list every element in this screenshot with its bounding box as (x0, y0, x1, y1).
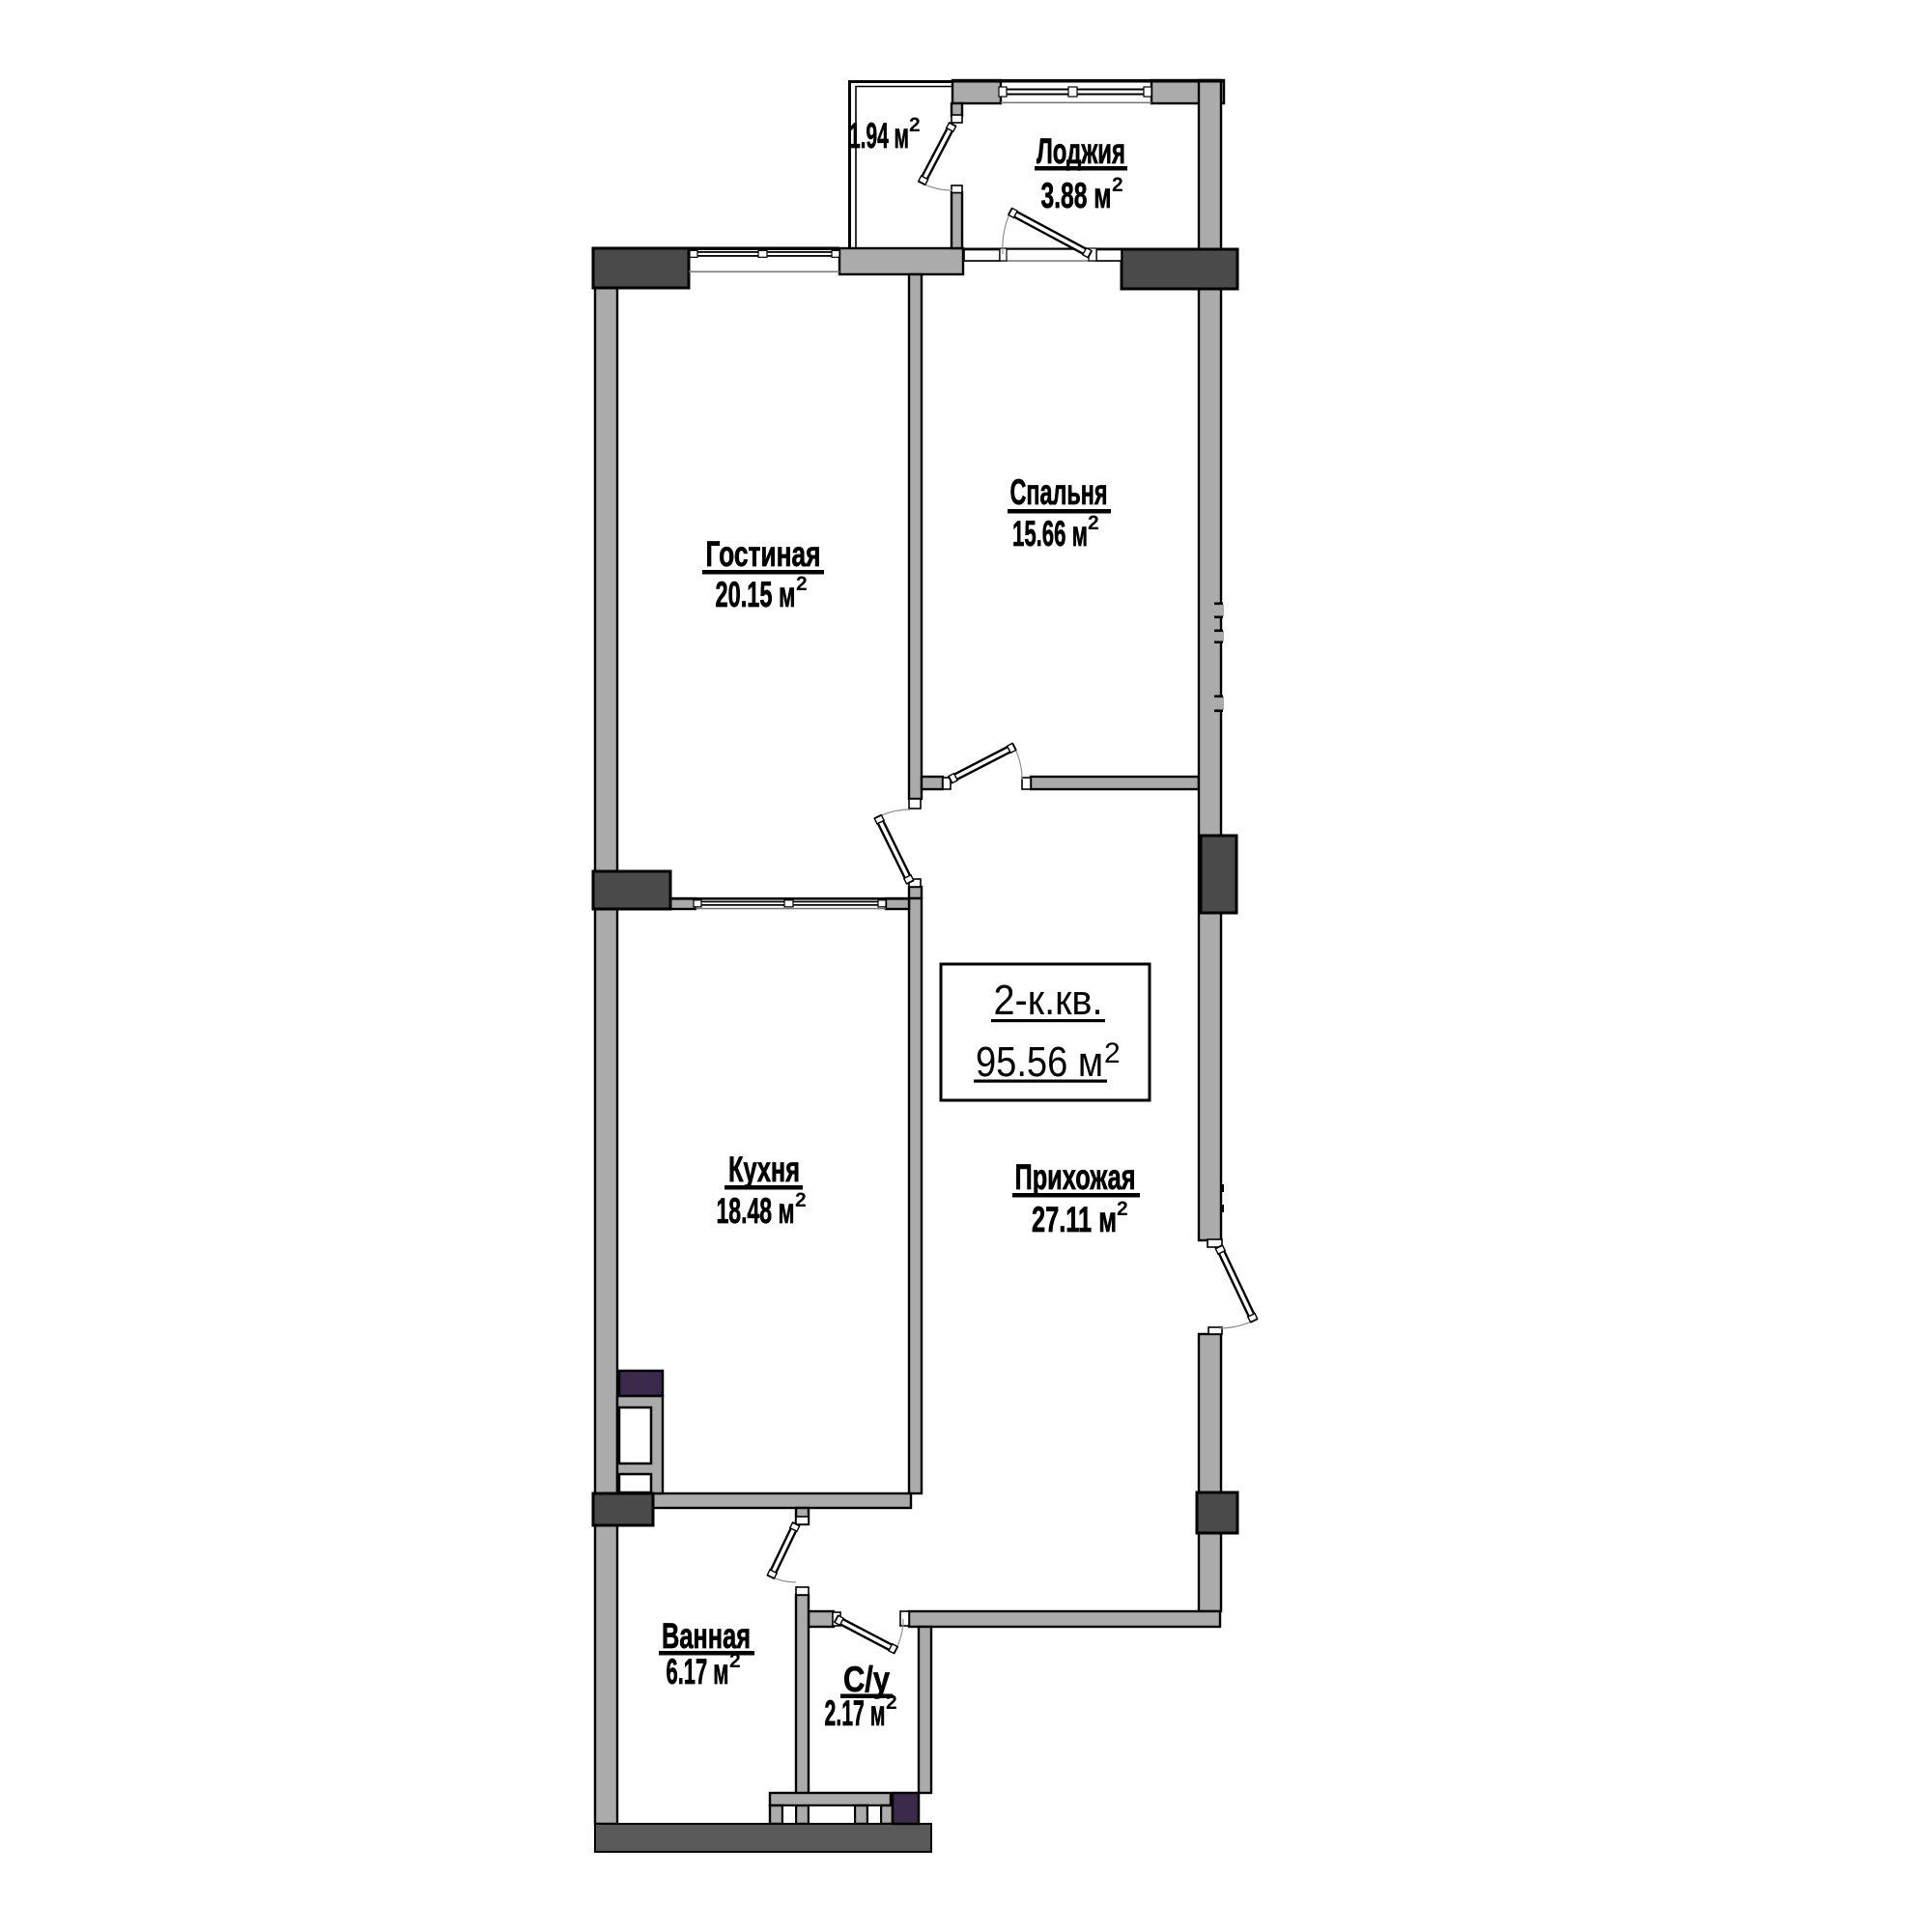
svg-text:Прихожая: Прихожая (1015, 1157, 1136, 1197)
svg-text:3.88 м: 3.88 м (1041, 176, 1112, 215)
svg-text:2: 2 (1104, 1037, 1121, 1069)
svg-text:20.15 м: 20.15 м (716, 575, 796, 614)
svg-text:2: 2 (1112, 174, 1123, 196)
svg-text:2-к.кв.: 2-к.кв. (994, 977, 1103, 1024)
svg-text:2: 2 (886, 1691, 897, 1714)
svg-text:Лоджия: Лоджия (1037, 131, 1125, 171)
svg-text:2: 2 (1088, 512, 1099, 534)
svg-text:18.48 м: 18.48 м (717, 1191, 795, 1231)
svg-text:Кухня: Кухня (728, 1150, 800, 1189)
svg-text:15.66 м: 15.66 м (1012, 514, 1088, 554)
svg-text:2.17 м: 2.17 м (825, 1693, 886, 1733)
svg-text:2: 2 (909, 114, 921, 136)
svg-text:2: 2 (795, 1189, 807, 1211)
svg-text:95.56 м: 95.56 м (976, 1038, 1103, 1086)
svg-text:Гостиная: Гостиная (706, 534, 821, 574)
svg-text:2: 2 (1117, 1198, 1128, 1220)
svg-text:2: 2 (729, 1650, 741, 1672)
svg-text:27.11 м: 27.11 м (1032, 1200, 1117, 1239)
svg-text:Спальня: Спальня (1010, 472, 1108, 512)
svg-text:2: 2 (796, 573, 808, 595)
svg-text:6.17 м: 6.17 м (667, 1652, 729, 1691)
svg-text:1.94 м: 1.94 м (849, 116, 909, 156)
